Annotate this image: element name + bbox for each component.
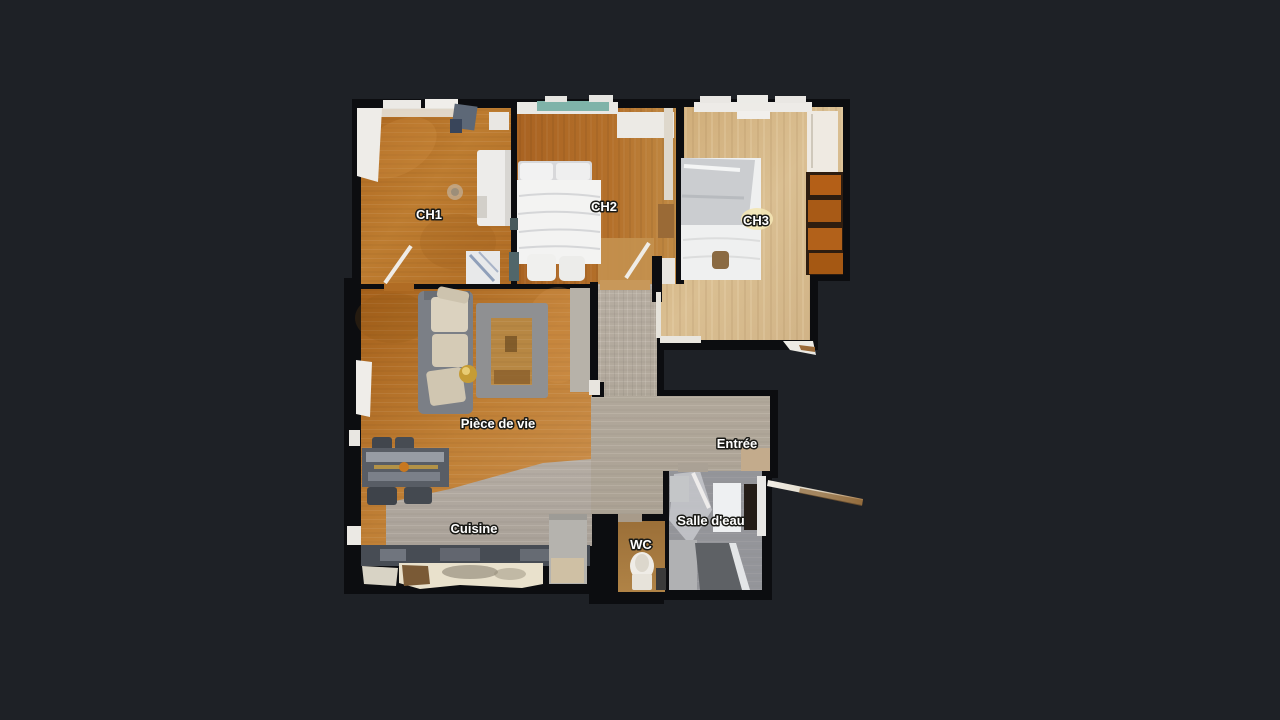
- svg-text:CH1: CH1: [416, 207, 442, 222]
- svg-text:CH3: CH3: [743, 213, 769, 228]
- svg-text:Cuisine: Cuisine: [451, 521, 498, 536]
- svg-text:CH2: CH2: [591, 199, 617, 214]
- svg-text:WC: WC: [630, 537, 652, 552]
- svg-text:Pièce de vie: Pièce de vie: [461, 416, 535, 431]
- svg-text:Salle d'eau: Salle d'eau: [677, 513, 744, 528]
- svg-text:Entrée: Entrée: [717, 436, 757, 451]
